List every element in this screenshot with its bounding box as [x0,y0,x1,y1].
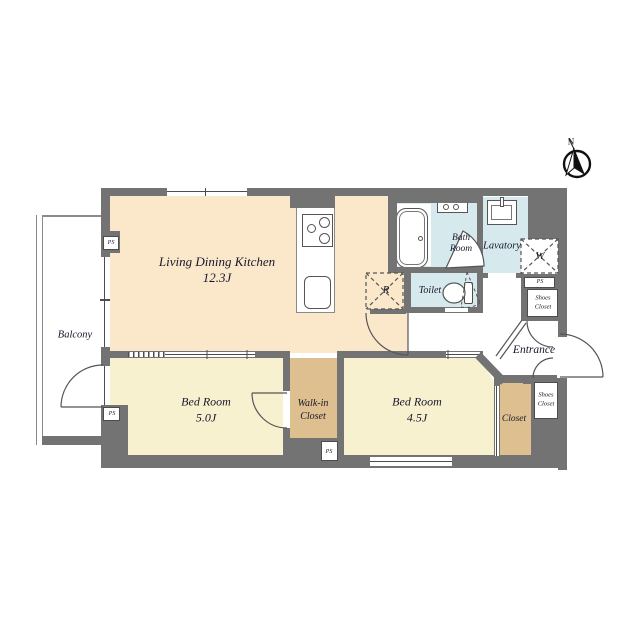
window-ldk-top [167,188,247,196]
bathtub-drain-icon [418,236,423,241]
ps-label-right: PS [537,279,544,285]
ldk-label: Living Dining Kitchen [159,255,275,269]
sliding-door-ldk-midline [165,354,255,355]
compass-north-label: N [568,137,575,146]
wall-bath-lavatory [477,196,483,313]
door-opening-lavatory [488,273,516,278]
bedroom-right-label: Bed Room [392,396,442,409]
lavatory-tap-icon [500,197,504,207]
wic-label-line1: Walk-in [298,399,329,410]
door-opening-entrance [557,337,567,378]
shoes-closet-lower-label-line2: Closet [538,402,555,409]
wall-bath-bottom [388,267,483,273]
lavatory-sink-basin [491,205,512,220]
wall-fridge-stub [370,309,406,314]
window-bedroom-left-midline [104,366,105,405]
ldk-size-label: 12.3J [203,271,232,285]
washer-label: W [535,251,544,263]
wall-corner-bottom-right [531,419,567,456]
wall-bath-top [388,196,483,203]
door-opening-wic [283,391,290,428]
shoes-closet-upper-label-line1: Shoes [535,296,550,303]
bedroom-right-size-label: 4.5J [407,412,427,425]
partition-louver [128,352,165,357]
window-ldk-balcony [100,257,110,347]
balcony-door-arc [61,365,103,407]
bath-room-label-line1: Bath [452,234,470,244]
wic-label-line2: Closet [300,412,326,423]
window-ldk-balcony-midline [104,257,105,347]
wall-bath-left [388,196,397,273]
refrigerator-label: R [383,285,390,297]
stove-burner-icon [307,224,316,233]
sliding-door-closet-midline [496,386,497,456]
window-bedroom-right-midline [370,461,452,462]
door-opening-toilet [445,308,468,312]
window-ldk-top-mullion [205,188,206,196]
window-ldk-balcony-mullion [100,299,110,301]
balcony-divider-panel [42,436,103,445]
shoes-closet-upper-label-line2: Closet [535,305,552,312]
bedroom-left-label: Bed Room [181,396,231,409]
stove-burner-icon [319,217,330,228]
closet-label: Closet [502,415,526,425]
ps-label-mid-left: PS [109,411,116,417]
shoes-closet-lower-label-line1: Shoes [538,393,553,400]
bath-faucet-knob-icon [443,204,449,210]
bedroom-left-size-label: 5.0J [196,412,216,425]
entrance-label: Entrance [513,344,555,356]
balcony-label: Balcony [58,329,92,340]
ldk-floor [110,196,408,353]
toilet-label: Toilet [419,286,441,297]
ps-label-walk-in: PS [326,449,333,455]
wall-kitchen-top [290,196,335,208]
floor-plan: Living Dining Kitchen 12.3J Balcony Bed … [0,0,640,640]
toilet-tank [464,282,473,304]
balcony-rail-outer [36,215,37,445]
stove-burner-icon [319,233,330,244]
kitchen-sink [304,276,331,309]
wall-toilet-bottom [404,307,482,313]
sliding-door-bedroom-right-midline [446,354,480,355]
balcony-rail-inner [42,215,43,445]
lavatory-label: Lavatory [483,240,521,251]
window-bedroom-left-balcony [100,366,110,405]
bath-room-label-line2: Room [450,245,472,255]
balcony-top-edge [43,215,101,217]
ps-label-top-left: PS [108,240,115,246]
bath-faucet-knob-icon [453,204,459,210]
window-ldk-top-midline [167,191,247,192]
